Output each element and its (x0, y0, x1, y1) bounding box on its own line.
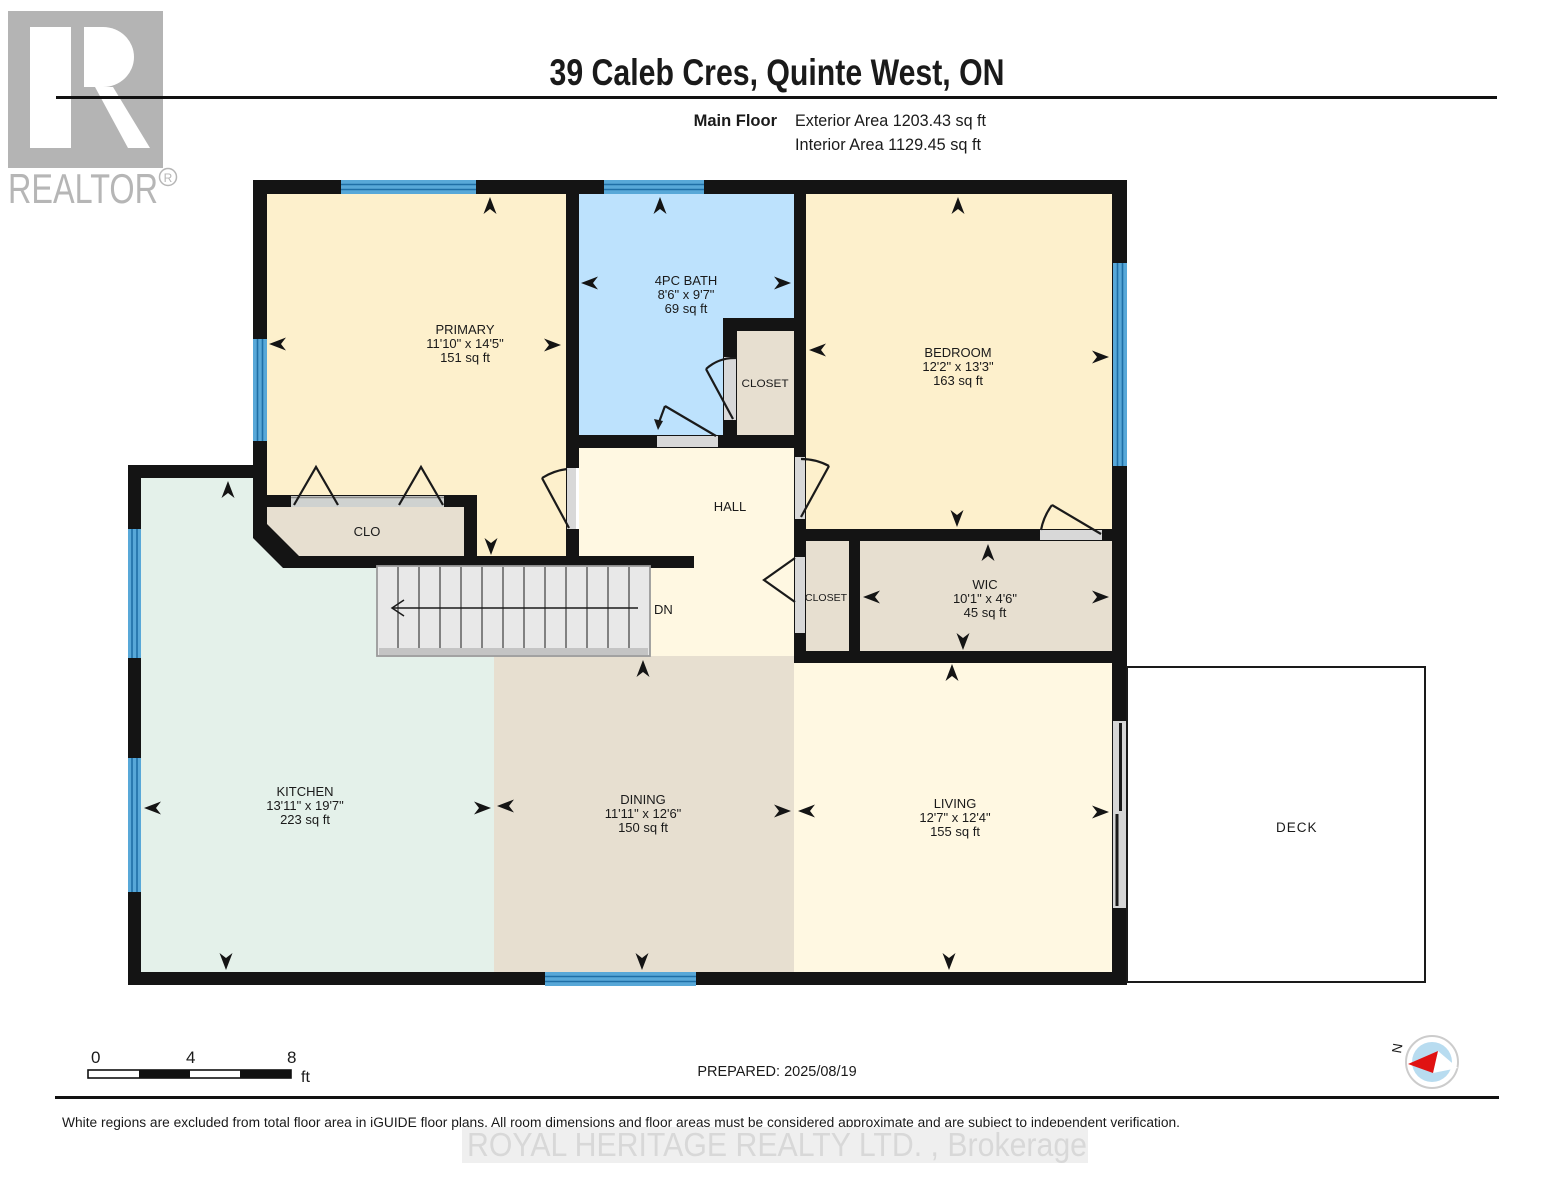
svg-text:Main Floor: Main Floor (694, 112, 778, 130)
svg-text:REALTOR: REALTOR (8, 165, 158, 212)
svg-text:ROYAL HERITAGE REALTY LTD. , B: ROYAL HERITAGE REALTY LTD. , Brokerage (467, 1126, 1087, 1163)
svg-text:12'7" x 12'4": 12'7" x 12'4" (919, 810, 991, 825)
svg-text:HALL: HALL (714, 499, 747, 514)
svg-text:11'11" x 12'6": 11'11" x 12'6" (605, 806, 682, 821)
svg-text:4: 4 (186, 1048, 195, 1067)
svg-text:WIC: WIC (972, 577, 997, 592)
svg-text:DINING: DINING (620, 792, 666, 807)
svg-text:BEDROOM: BEDROOM (924, 345, 991, 360)
svg-text:PREPARED: 2025/08/19: PREPARED: 2025/08/19 (697, 1064, 856, 1080)
svg-text:R: R (164, 171, 173, 185)
svg-text:CLOSET: CLOSET (742, 378, 789, 390)
svg-text:10'1" x 4'6": 10'1" x 4'6" (953, 591, 1017, 606)
svg-text:223 sq ft: 223 sq ft (280, 812, 330, 827)
svg-text:11'10" x 14'5": 11'10" x 14'5" (426, 336, 504, 351)
svg-text:163 sq ft: 163 sq ft (933, 373, 983, 388)
svg-text:ft: ft (301, 1069, 310, 1086)
svg-text:CLOSET: CLOSET (805, 592, 848, 604)
svg-text:151 sq ft: 151 sq ft (440, 350, 490, 365)
svg-text:Interior Area 1129.45 sq ft: Interior Area 1129.45 sq ft (795, 136, 981, 154)
svg-text:PRIMARY: PRIMARY (436, 322, 495, 337)
svg-text:12'2" x 13'3": 12'2" x 13'3" (922, 359, 994, 374)
svg-text:CLO: CLO (354, 524, 381, 539)
svg-text:4PC BATH: 4PC BATH (655, 273, 718, 288)
svg-text:DN: DN (654, 602, 673, 617)
svg-text:45 sq ft: 45 sq ft (964, 605, 1007, 620)
svg-text:0: 0 (91, 1048, 100, 1067)
svg-text:69 sq ft: 69 sq ft (665, 301, 708, 316)
svg-text:DECK: DECK (1276, 820, 1318, 835)
svg-text:8'6" x 9'7": 8'6" x 9'7" (658, 287, 715, 302)
svg-text:Exterior Area 1203.43 sq ft: Exterior Area 1203.43 sq ft (795, 112, 986, 130)
svg-text:155 sq ft: 155 sq ft (930, 824, 980, 839)
svg-text:13'11" x 19'7": 13'11" x 19'7" (266, 798, 344, 813)
svg-text:LIVING: LIVING (934, 796, 977, 811)
svg-text:8: 8 (287, 1048, 296, 1067)
svg-text:KITCHEN: KITCHEN (276, 784, 333, 799)
svg-text:150 sq ft: 150 sq ft (618, 820, 668, 835)
svg-text:39 Caleb Cres, Quinte West, ON: 39 Caleb Cres, Quinte West, ON (550, 52, 1005, 93)
